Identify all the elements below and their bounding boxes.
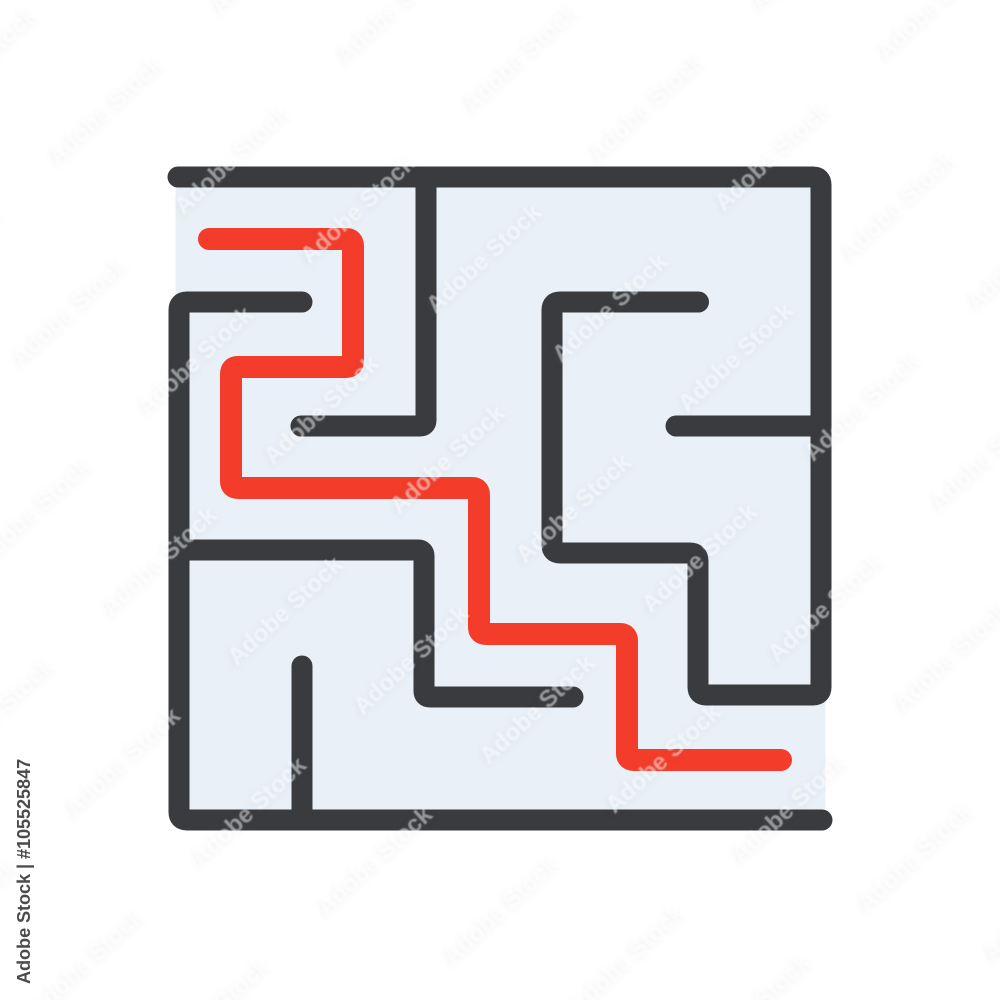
svg-text:Adobe Stock | #105525847: Adobe Stock | #105525847	[14, 759, 34, 984]
